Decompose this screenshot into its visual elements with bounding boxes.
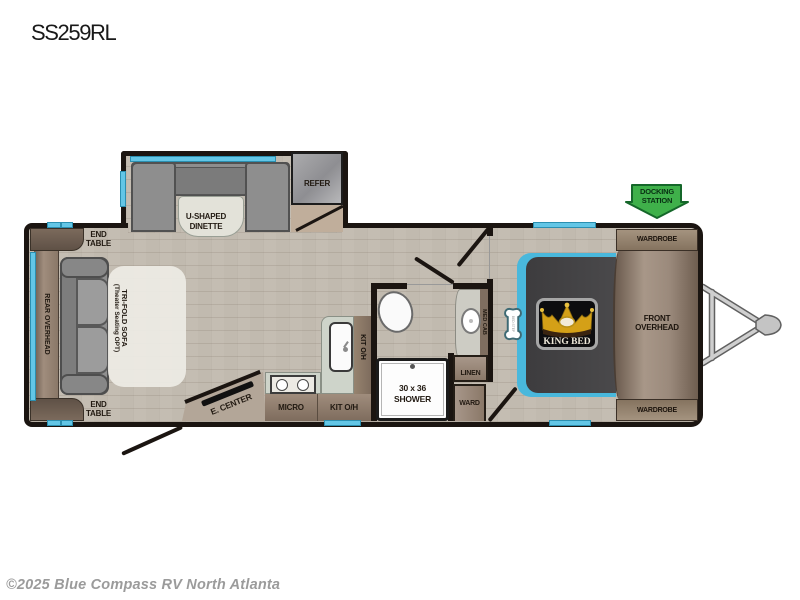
- svg-text:KING BED: KING BED: [543, 337, 590, 347]
- svg-text:BED STEP: BED STEP: [511, 316, 515, 332]
